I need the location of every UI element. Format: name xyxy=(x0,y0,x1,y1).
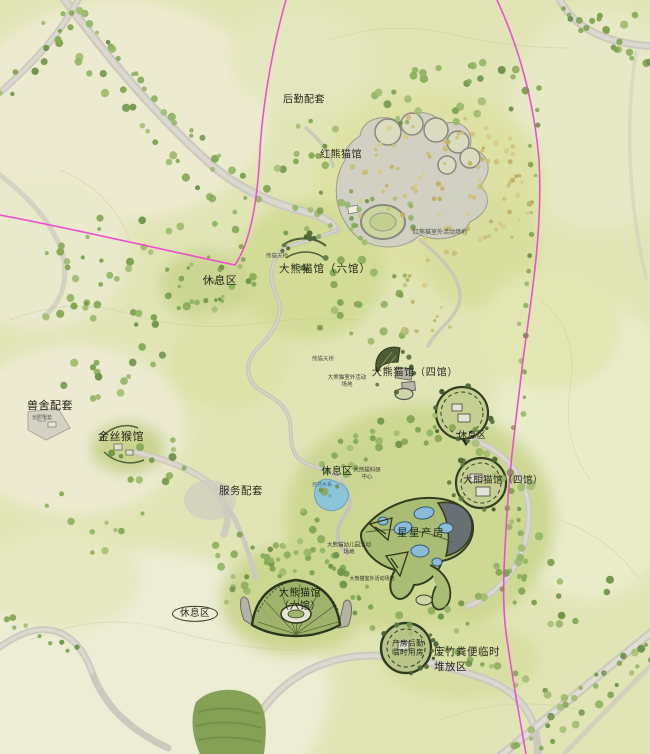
temp-rooms-circle-south xyxy=(381,623,431,673)
site-plan-map: 后勤配套 红熊猫馆 红熊猫室外活动场地 大熊猫馆（六馆） 休息区 熊猫天桥 熊猫… xyxy=(0,0,650,754)
service-support-area xyxy=(184,480,236,520)
map-canvas xyxy=(0,0,650,754)
dense-grove-pond xyxy=(193,690,266,754)
temp-enclosure-circle-east xyxy=(436,387,488,439)
